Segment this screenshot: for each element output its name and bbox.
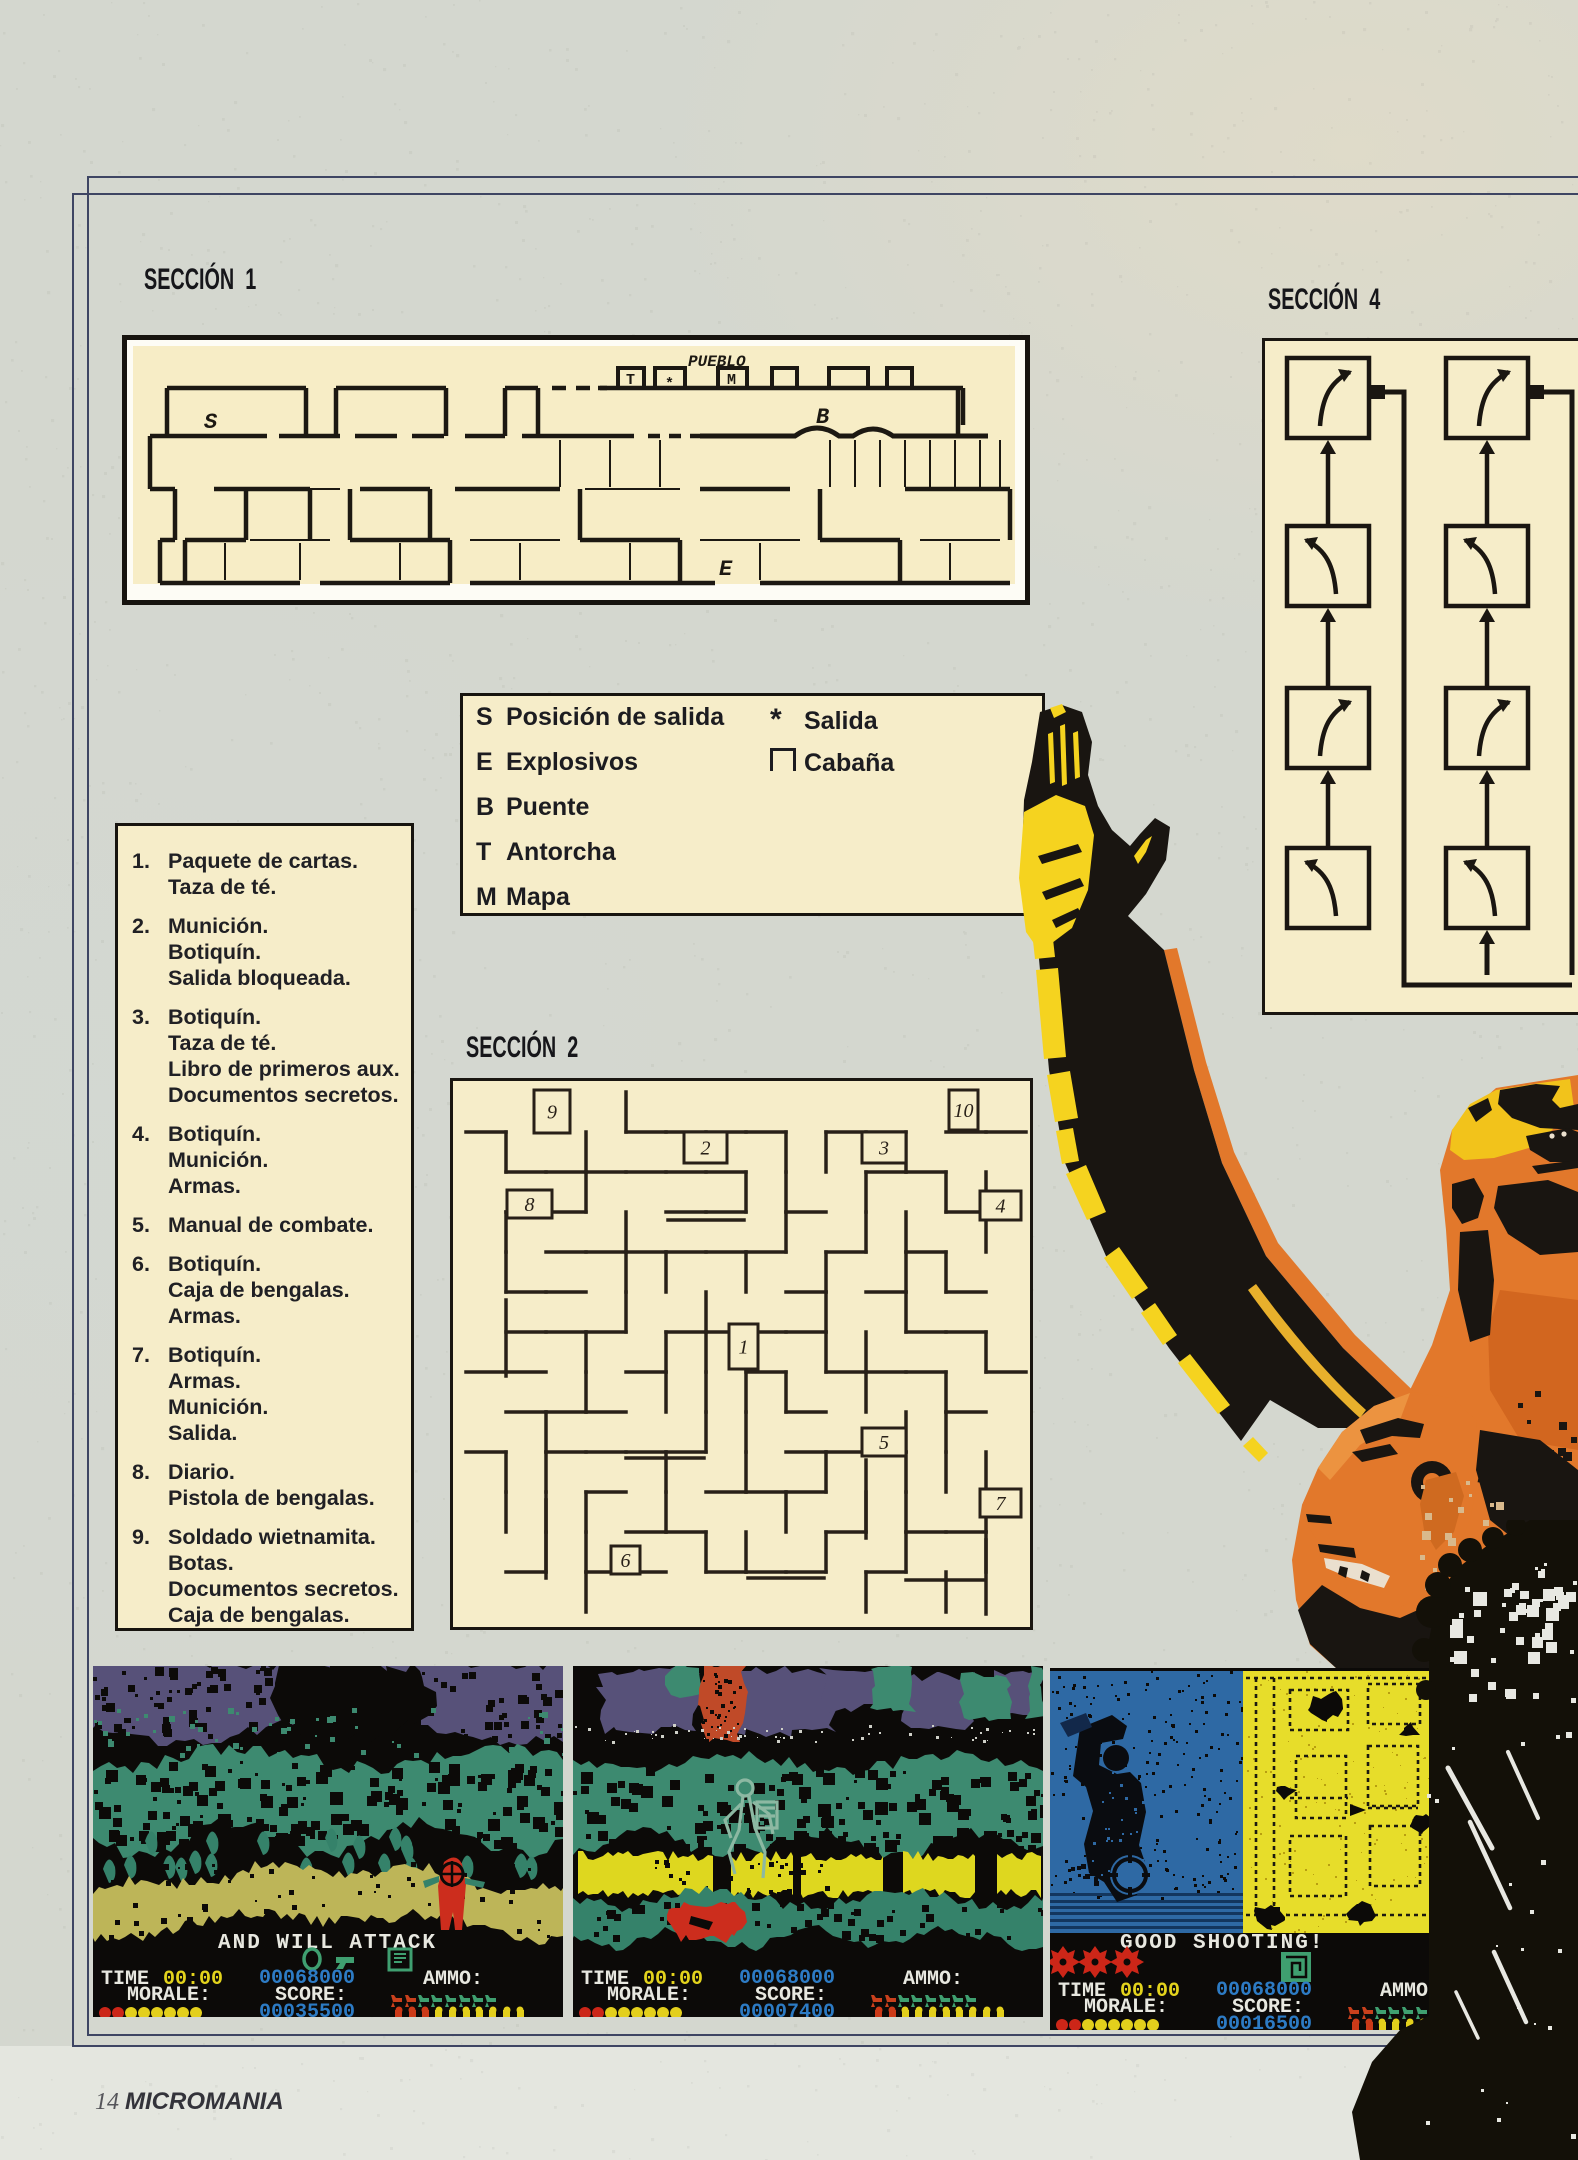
svg-text:AND WILL ATTACK: AND WILL ATTACK: [218, 1932, 437, 1955]
svg-text:*: *: [665, 376, 674, 393]
svg-text:T: T: [626, 372, 635, 389]
svg-text:MORALE:: MORALE:: [127, 1984, 211, 2007]
svg-text:M: M: [727, 372, 736, 389]
svg-text:8: 8: [525, 1194, 535, 1216]
svg-text:AMMO:: AMMO:: [423, 1968, 483, 1991]
svg-text:S: S: [204, 410, 218, 435]
svg-text:E: E: [719, 557, 733, 582]
svg-text:9: 9: [547, 1102, 557, 1124]
svg-text:PUEBLO: PUEBLO: [688, 353, 746, 371]
svg-text:10: 10: [954, 1100, 974, 1122]
svg-text:3: 3: [878, 1138, 889, 1160]
svg-text:5: 5: [879, 1432, 889, 1454]
svg-text:2: 2: [701, 1138, 711, 1160]
svg-text:00035500: 00035500: [259, 2001, 355, 2017]
svg-text:6: 6: [621, 1550, 631, 1572]
svg-text:1: 1: [739, 1337, 749, 1359]
svg-text:AMMO:: AMMO:: [903, 1968, 963, 1991]
svg-text:00007400: 00007400: [739, 2001, 835, 2017]
svg-text:MORALE:: MORALE:: [607, 1984, 691, 2007]
svg-text:B: B: [816, 405, 829, 430]
